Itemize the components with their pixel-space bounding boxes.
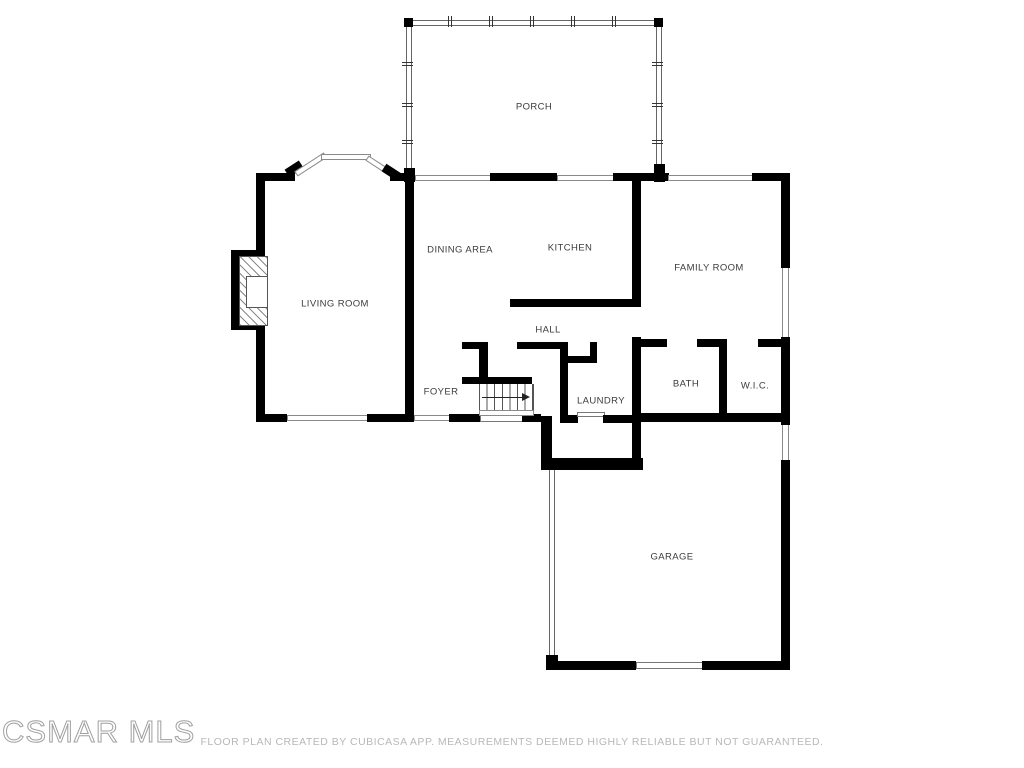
porch-tick bbox=[652, 62, 663, 66]
mls-watermark: CSMAR MLS bbox=[2, 714, 195, 750]
porch-tick bbox=[612, 16, 616, 27]
porch-wall-right bbox=[656, 27, 662, 166]
foyer-sidelight-window bbox=[414, 415, 451, 421]
room-label-bath: BATH bbox=[673, 379, 699, 390]
stair-threshold bbox=[479, 410, 534, 416]
porch-tick bbox=[448, 16, 452, 27]
room-label-kitchen: KITCHEN bbox=[548, 243, 593, 254]
garage-side-window bbox=[782, 425, 789, 460]
wall-segment bbox=[781, 337, 790, 425]
kitchen-window bbox=[557, 175, 615, 181]
front-door bbox=[480, 415, 524, 422]
porch-tick bbox=[530, 16, 534, 27]
living-room-window bbox=[287, 415, 369, 421]
porch-tick bbox=[402, 140, 413, 144]
porch-wall-left bbox=[406, 27, 412, 168]
room-label-porch: PORCH bbox=[516, 102, 552, 113]
porch-corner bbox=[404, 18, 413, 27]
wall-segment bbox=[449, 414, 480, 422]
bath-top-wall bbox=[641, 339, 667, 347]
wall-segment bbox=[490, 173, 557, 181]
garage-bottom-wall bbox=[546, 661, 636, 670]
family-room-window bbox=[668, 175, 754, 181]
bay-window-center bbox=[321, 154, 371, 160]
room-label-foyer: FOYER bbox=[424, 387, 459, 398]
dining-window bbox=[415, 175, 492, 181]
room-label-living: LIVING ROOM bbox=[301, 299, 369, 310]
laundry-left-wall bbox=[560, 342, 568, 423]
stairs-arrow-head-icon bbox=[522, 393, 530, 401]
wall-segment bbox=[256, 414, 287, 422]
laundry-door bbox=[577, 412, 605, 417]
garage-notch-wall bbox=[541, 458, 643, 470]
wall-segment bbox=[479, 342, 488, 382]
wall-segment bbox=[603, 415, 633, 423]
porch-tick bbox=[489, 16, 493, 27]
wall-segment bbox=[781, 173, 790, 268]
porch-corner bbox=[654, 18, 663, 27]
room-label-laundry: LAUNDRY bbox=[577, 396, 625, 407]
garage-bottom-wall bbox=[702, 661, 790, 670]
room-label-wic: W.I.C. bbox=[741, 381, 769, 392]
room-label-dining: DINING AREA bbox=[427, 245, 493, 256]
porch-tick bbox=[652, 103, 663, 107]
wall-segment bbox=[256, 173, 265, 252]
garage-left-boundary bbox=[549, 470, 555, 657]
porch-tick bbox=[402, 62, 413, 66]
stair-head-wall bbox=[462, 377, 532, 384]
room-label-garage: GARAGE bbox=[650, 552, 693, 563]
wic-top-wall bbox=[758, 339, 781, 347]
bath-left-wall bbox=[632, 337, 641, 470]
floor-plan: PORCH DINING AREA KITCHEN FAMILY ROOM LI… bbox=[0, 0, 1024, 768]
porch-tick bbox=[652, 140, 663, 144]
fireplace-firebox bbox=[246, 276, 268, 308]
bath-wic-bottom-wall bbox=[633, 413, 790, 422]
garage-door bbox=[636, 662, 704, 669]
wall-segment bbox=[781, 460, 790, 670]
wall-segment bbox=[541, 416, 552, 462]
porch-tick bbox=[402, 103, 413, 107]
disclaimer-text: FLOOR PLAN CREATED BY CUBICASA APP. MEAS… bbox=[201, 736, 824, 748]
fireplace-back-wall bbox=[231, 250, 239, 330]
bath-wic-divider bbox=[719, 343, 727, 417]
living-dining-wall bbox=[405, 173, 414, 422]
stairs-direction-arrow bbox=[482, 397, 523, 398]
kitchen-family-wall bbox=[632, 173, 641, 307]
wall-segment bbox=[256, 330, 265, 422]
room-label-hall: HALL bbox=[535, 325, 560, 336]
family-room-slider bbox=[782, 268, 789, 337]
porch-tick bbox=[571, 16, 575, 27]
wall-segment bbox=[560, 415, 578, 423]
room-label-family: FAMILY ROOM bbox=[674, 263, 744, 274]
laundry-closet-wall bbox=[566, 356, 597, 363]
kitchen-bottom-wall bbox=[510, 299, 641, 307]
